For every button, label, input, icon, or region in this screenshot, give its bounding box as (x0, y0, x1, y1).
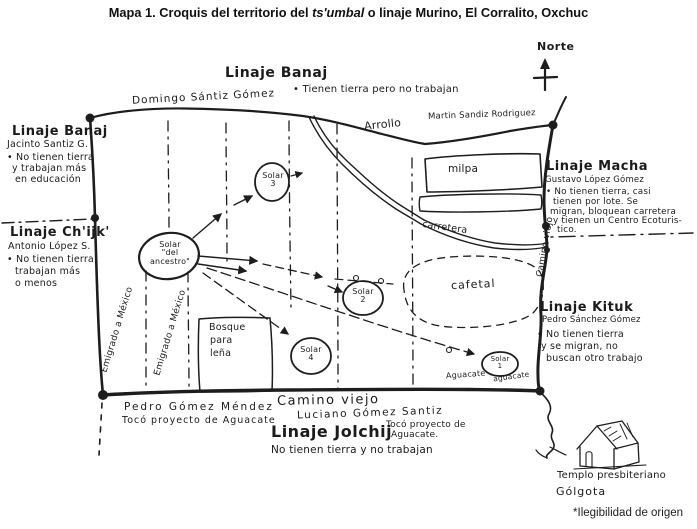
lineage-banaj-left-title: Linaje Banaj (12, 125, 108, 139)
title-prefix: Mapa 1. Croquis del territorio del (109, 5, 312, 20)
cafetal-outline (404, 256, 544, 327)
lineage-banaj-left-note-1: • No tienen tierra (7, 153, 94, 163)
lineage-chijk-note-2: trabajan más (15, 267, 80, 277)
compass-label: Norte (537, 41, 574, 53)
lineage-jolchij-note: No tienen tierra y no trabajan (271, 445, 433, 456)
temple-icon (574, 421, 646, 469)
border-left-lower-dashes (99, 403, 102, 455)
lineage-banaj-left-note-3: en educación (15, 175, 81, 185)
lineage-macha-title: Linaje Macha (546, 160, 648, 174)
lineage-kituk-person: Pedro Sánchez Gómez (542, 316, 641, 325)
title-emphasis: ts'umbal (312, 5, 364, 20)
border-corner-stub (553, 97, 566, 125)
bosque-label-3: leña (210, 349, 231, 359)
solar-1-label: Solar 1 (482, 356, 518, 371)
lineage-kituk-note-2: y se migran, no (541, 342, 618, 352)
river (536, 392, 566, 458)
dashdot-left-outside (2, 219, 93, 223)
templo-label-2: Gólgota (556, 486, 606, 498)
lineage-macha-person: Gustavo López Gómez (545, 176, 644, 185)
solar-3-label: Solar 3 (253, 172, 293, 189)
bosque-label-1: Bosque (209, 323, 245, 333)
lineage-chijk-person: Antonio López S. (8, 242, 91, 252)
solar-2-label: Solar 2 (343, 288, 383, 305)
compass-north-icon (534, 58, 557, 90)
solar-4-label: Solar 4 (291, 346, 331, 363)
lineage-chijk-note-3: o menos (15, 279, 57, 289)
field-strip-outline (419, 194, 542, 212)
title-suffix: o linaje Murino, El Corralito, Oxchuc (364, 5, 588, 20)
owner-pedro-gomez: Pedro Gómez Méndez (124, 402, 274, 413)
lineage-macha-note-1: • No tienen tierra, casi (546, 188, 651, 197)
map-canvas: Mapa 1. Croquis del territorio del ts'um… (0, 0, 697, 529)
lineage-banaj-top-title: Linaje Banaj (225, 66, 328, 81)
owner-luciano-gomez-note-2: Aguacate. (391, 431, 438, 440)
footnote: *Ilegibilidad de origen (573, 507, 683, 519)
lineage-banaj-left-person: Jacinto Santiz G. (7, 140, 88, 150)
cafetal-label: cafetal (451, 278, 496, 292)
lineage-kituk-title: Linaje Kituk (540, 301, 633, 315)
owner-pedro-gomez-note: Tocó proyecto de Aguacate (122, 416, 276, 426)
milpa-label: milpa (448, 164, 478, 175)
lineage-macha-note-2: tienen por lote. Se (553, 198, 638, 207)
solar-ancestro-label: Solar "del ancestro" (145, 241, 195, 266)
templo-label-1: Templo presbiteriano (557, 471, 666, 482)
lineage-macha-note-5: tico. (557, 226, 577, 235)
lineage-kituk-note-3: buscan otro trabajo (546, 354, 643, 364)
milpa-field-outline (425, 154, 542, 192)
lineage-banaj-left-note-2: y trabajan más (12, 164, 86, 174)
lineage-jolchij-title: Linaje Jolchij (271, 424, 392, 441)
bosque-label-2: para (210, 336, 232, 346)
page-title: Mapa 1. Croquis del territorio del ts'um… (0, 5, 697, 20)
lineage-kituk-note-1: • No tienen tierra (537, 330, 624, 340)
lineage-chijk-note-1: • No tienen tierra (7, 255, 94, 265)
lineage-banaj-top-note: • Tienen tierra pero no trabajan (293, 85, 459, 96)
lineage-chijk-title: Linaje Ch'ijk' (10, 226, 110, 240)
